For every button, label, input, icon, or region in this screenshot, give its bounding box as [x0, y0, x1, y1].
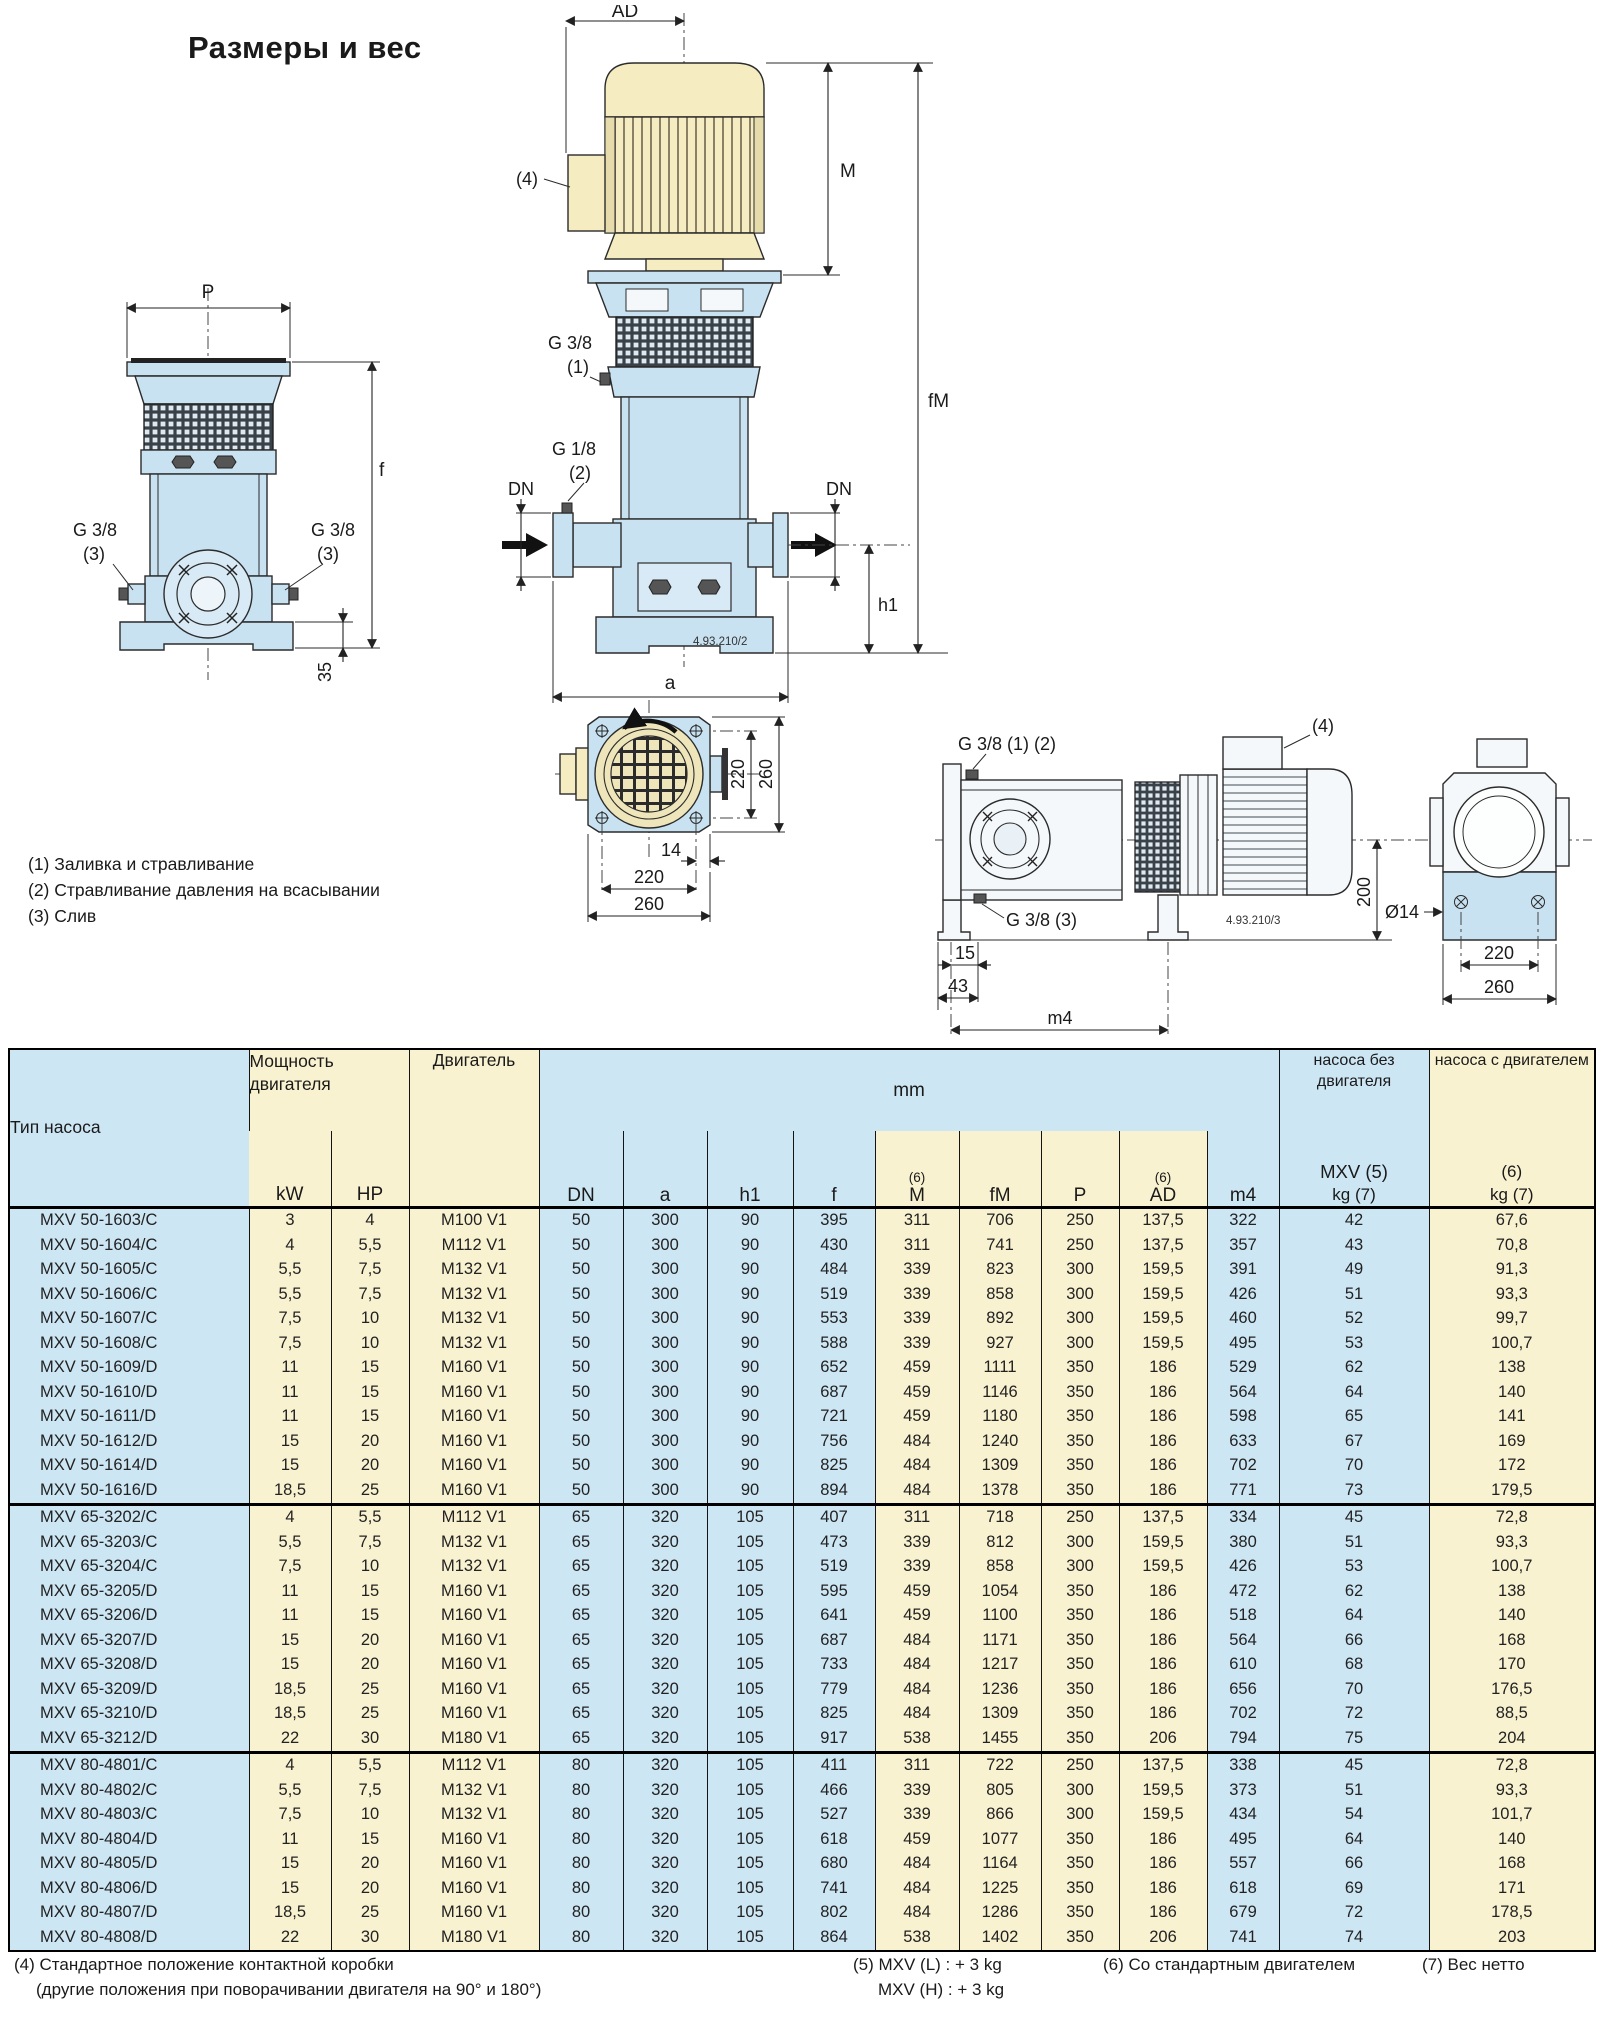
- value-cell: 75: [1279, 1726, 1429, 1752]
- drawing-horizontal-view: G 3/8 (1) (2) G 3/8 (3) (4) 4.93.210/3 2…: [930, 680, 1600, 1050]
- dim-label-ad: AD: [612, 5, 638, 22]
- value-cell: 350: [1041, 1604, 1119, 1629]
- col-header-m4: m4: [1207, 1131, 1279, 1207]
- value-cell: 250: [1041, 1207, 1119, 1233]
- footnote-4-line1: (4) Стандартное положение контактной кор…: [14, 1952, 541, 1977]
- value-cell: 430: [793, 1233, 875, 1258]
- value-cell: 171: [1429, 1876, 1595, 1901]
- value-cell: 70: [1279, 1677, 1429, 1702]
- value-cell: 66: [1279, 1628, 1429, 1653]
- value-cell: 90: [707, 1282, 793, 1307]
- dim-label-260-bottom: 260: [634, 894, 664, 914]
- footnote-5-line2: MXV (H) : + 3 kg: [853, 1977, 1004, 2002]
- value-cell: 434: [1207, 1803, 1279, 1828]
- value-cell: 858: [959, 1555, 1041, 1580]
- value-cell: 62: [1279, 1579, 1429, 1604]
- value-cell: 105: [707, 1555, 793, 1580]
- value-cell: 679: [1207, 1901, 1279, 1926]
- value-cell: 90: [707, 1233, 793, 1258]
- value-cell: 300: [623, 1282, 707, 1307]
- col-header-motor: Двигатель: [409, 1049, 539, 1207]
- port-label-n3-right: (3): [317, 544, 339, 564]
- value-cell: M160 V1: [409, 1478, 539, 1504]
- note-1: (1) Заливка и стравливание: [28, 851, 380, 877]
- motor-fins: [605, 117, 764, 233]
- value-cell: 320: [623, 1778, 707, 1803]
- value-cell: M160 V1: [409, 1429, 539, 1454]
- dim-label-260-right: 260: [756, 759, 776, 789]
- value-cell: M160 V1: [409, 1628, 539, 1653]
- pump-type-cell: MXV 80-4804/D: [9, 1827, 249, 1852]
- value-cell: 825: [793, 1702, 875, 1727]
- value-cell: 186: [1119, 1405, 1207, 1430]
- value-cell: 11: [249, 1604, 331, 1629]
- value-cell: 141: [1429, 1405, 1595, 1430]
- table-row: MXV 50-1607/C7,510M132 V1503009055333989…: [9, 1307, 1595, 1332]
- value-cell: 484: [875, 1677, 959, 1702]
- value-cell: 50: [539, 1405, 623, 1430]
- value-cell: 311: [875, 1752, 959, 1778]
- value-cell: 65: [539, 1726, 623, 1752]
- table-row: MXV 65-3212/D2230M180 V16532010591753814…: [9, 1726, 1595, 1752]
- value-cell: 105: [707, 1677, 793, 1702]
- col-header-pump-type: Тип насоса: [9, 1049, 249, 1207]
- port-label-n1: (1): [567, 357, 589, 377]
- value-cell: 1164: [959, 1852, 1041, 1877]
- pump-type-cell: MXV 50-1606/C: [9, 1282, 249, 1307]
- col-header-kw: kW: [249, 1131, 331, 1207]
- value-cell: 300: [1041, 1555, 1119, 1580]
- value-cell: 11: [249, 1405, 331, 1430]
- value-cell: 15: [249, 1876, 331, 1901]
- table-row: MXV 80-4806/D1520M160 V18032010574148412…: [9, 1876, 1595, 1901]
- table-row: MXV 65-3207/D1520M160 V16532010568748411…: [9, 1628, 1595, 1653]
- table-row: MXV 80-4805/D1520M160 V18032010568048411…: [9, 1852, 1595, 1877]
- table-row: MXV 65-3206/D1115M160 V16532010564145911…: [9, 1604, 1595, 1629]
- value-cell: M112 V1: [409, 1233, 539, 1258]
- value-cell: 18,5: [249, 1901, 331, 1926]
- value-cell: 350: [1041, 1405, 1119, 1430]
- pump-type-cell: MXV 65-3208/D: [9, 1653, 249, 1678]
- table-row: MXV 80-4804/D1115M160 V18032010561845910…: [9, 1827, 1595, 1852]
- value-cell: 618: [793, 1827, 875, 1852]
- value-cell: M132 V1: [409, 1778, 539, 1803]
- port-label-g18: G 1/8: [552, 439, 596, 459]
- value-cell: 20: [331, 1876, 409, 1901]
- value-cell: 320: [623, 1579, 707, 1604]
- value-cell: 53: [1279, 1555, 1429, 1580]
- value-cell: 52: [1279, 1307, 1429, 1332]
- dim-label-m4: m4: [1047, 1008, 1072, 1028]
- value-cell: 300: [1041, 1258, 1119, 1283]
- value-cell: M160 V1: [409, 1677, 539, 1702]
- value-cell: 5,5: [249, 1258, 331, 1283]
- value-cell: 18,5: [249, 1702, 331, 1727]
- value-cell: 18,5: [249, 1478, 331, 1504]
- col-header-mm: mm: [539, 1049, 1279, 1131]
- value-cell: 557: [1207, 1852, 1279, 1877]
- pump-type-cell: MXV 80-4808/D: [9, 1925, 249, 1951]
- value-cell: 484: [793, 1258, 875, 1283]
- value-cell: M112 V1: [409, 1504, 539, 1530]
- value-cell: M160 V1: [409, 1579, 539, 1604]
- value-cell: 350: [1041, 1702, 1119, 1727]
- value-cell: 473: [793, 1530, 875, 1555]
- pump-type-cell: MXV 50-1611/D: [9, 1405, 249, 1430]
- value-cell: 4: [249, 1504, 331, 1530]
- value-cell: 320: [623, 1901, 707, 1926]
- motor-dome: [1307, 769, 1352, 895]
- pump-type-cell: MXV 80-4801/C: [9, 1752, 249, 1778]
- table-row: MXV 65-3210/D18,525M160 V165320105825484…: [9, 1702, 1595, 1727]
- value-cell: 137,5: [1119, 1504, 1207, 1530]
- value-cell: 43: [1279, 1233, 1429, 1258]
- value-cell: 733: [793, 1653, 875, 1678]
- value-cell: 72: [1279, 1901, 1429, 1926]
- value-cell: 204: [1429, 1726, 1595, 1752]
- value-cell: 7,5: [331, 1530, 409, 1555]
- value-cell: 1111: [959, 1356, 1041, 1381]
- value-cell: 411: [793, 1752, 875, 1778]
- pump-type-cell: MXV 65-3203/C: [9, 1530, 249, 1555]
- value-cell: 186: [1119, 1579, 1207, 1604]
- col-header-m: (6) M: [875, 1131, 959, 1207]
- footnote-ref-6: (6): [876, 1170, 959, 1185]
- value-cell: 105: [707, 1803, 793, 1828]
- value-cell: 50: [539, 1454, 623, 1479]
- value-cell: 320: [623, 1803, 707, 1828]
- table-row: MXV 65-3208/D1520M160 V16532010573348412…: [9, 1653, 1595, 1678]
- value-cell: 72,8: [1429, 1752, 1595, 1778]
- value-cell: 350: [1041, 1852, 1119, 1877]
- value-cell: 495: [1207, 1331, 1279, 1356]
- value-cell: 186: [1119, 1454, 1207, 1479]
- value-cell: 7,5: [249, 1803, 331, 1828]
- pump-type-cell: MXV 80-4807/D: [9, 1901, 249, 1926]
- value-cell: 338: [1207, 1752, 1279, 1778]
- value-cell: 300: [1041, 1307, 1119, 1332]
- value-cell: 15: [249, 1454, 331, 1479]
- port-label-n3-left: (3): [83, 544, 105, 564]
- value-cell: M132 V1: [409, 1331, 539, 1356]
- value-cell: 65: [539, 1530, 623, 1555]
- value-cell: 15: [331, 1604, 409, 1629]
- footnote-6: (6) Со стандартным двигателем: [1103, 1952, 1355, 1977]
- value-cell: 484: [875, 1876, 959, 1901]
- value-cell: 320: [623, 1852, 707, 1877]
- value-cell: 50: [539, 1258, 623, 1283]
- footnote-4-line2: (другие положения при поворачивании двиг…: [14, 1977, 541, 2002]
- value-cell: 7,5: [249, 1555, 331, 1580]
- value-cell: 300: [1041, 1803, 1119, 1828]
- footnote-5: (5) MXV (L) : + 3 kg MXV (H) : + 3 kg: [853, 1952, 1004, 2002]
- value-cell: 538: [875, 1925, 959, 1951]
- table-row: MXV 50-1614/D1520M160 V15030090825484130…: [9, 1454, 1595, 1479]
- value-cell: 300: [1041, 1530, 1119, 1555]
- value-cell: 54: [1279, 1803, 1429, 1828]
- value-cell: 459: [875, 1405, 959, 1430]
- value-cell: 105: [707, 1876, 793, 1901]
- value-cell: 519: [793, 1282, 875, 1307]
- value-cell: 250: [1041, 1233, 1119, 1258]
- footnote-4: (4) Стандартное положение контактной кор…: [14, 1952, 541, 2002]
- pump-type-cell: MXV 65-3202/C: [9, 1504, 249, 1530]
- value-cell: 320: [623, 1604, 707, 1629]
- value-cell: 407: [793, 1504, 875, 1530]
- value-cell: 22: [249, 1925, 331, 1951]
- value-cell: M160 V1: [409, 1901, 539, 1926]
- value-cell: 186: [1119, 1827, 1207, 1852]
- value-cell: 706: [959, 1207, 1041, 1233]
- value-cell: 1146: [959, 1380, 1041, 1405]
- value-cell: 20: [331, 1653, 409, 1678]
- value-cell: 20: [331, 1429, 409, 1454]
- value-cell: 90: [707, 1331, 793, 1356]
- dim-label-220-end: 220: [1484, 943, 1514, 963]
- value-cell: 30: [331, 1726, 409, 1752]
- value-cell: M160 V1: [409, 1702, 539, 1727]
- value-cell: 300: [1041, 1778, 1119, 1803]
- value-cell: 137,5: [1119, 1752, 1207, 1778]
- value-cell: 186: [1119, 1478, 1207, 1504]
- value-cell: 18,5: [249, 1677, 331, 1702]
- value-cell: 66: [1279, 1852, 1429, 1877]
- value-cell: 49: [1279, 1258, 1429, 1283]
- coupling-guard-mesh: [144, 404, 273, 450]
- value-cell: 68: [1279, 1653, 1429, 1678]
- value-cell: 186: [1119, 1604, 1207, 1629]
- value-cell: 1180: [959, 1405, 1041, 1430]
- col-header-weight-with-motor: насоса с двигателем: [1429, 1049, 1595, 1131]
- value-cell: 67: [1279, 1429, 1429, 1454]
- port-notes: (1) Заливка и стравливание (2) Стравлива…: [28, 851, 380, 929]
- value-cell: 206: [1119, 1726, 1207, 1752]
- table-row: MXV 65-3203/C5,57,5M132 V165320105473339…: [9, 1530, 1595, 1555]
- value-cell: 618: [1207, 1876, 1279, 1901]
- value-cell: 7,5: [249, 1307, 331, 1332]
- value-cell: M160 V1: [409, 1454, 539, 1479]
- value-cell: 1100: [959, 1604, 1041, 1629]
- table-row: MXV 50-1616/D18,525M160 V150300908944841…: [9, 1478, 1595, 1504]
- value-cell: 350: [1041, 1579, 1119, 1604]
- value-cell: 20: [331, 1852, 409, 1877]
- value-cell: 105: [707, 1778, 793, 1803]
- value-cell: 334: [1207, 1504, 1279, 1530]
- value-cell: 864: [793, 1925, 875, 1951]
- value-cell: 99,7: [1429, 1307, 1595, 1332]
- value-cell: 90: [707, 1405, 793, 1430]
- weight-with-motor-line1: (6): [1430, 1160, 1595, 1183]
- table-row: MXV 80-4808/D2230M180 V18032010586453814…: [9, 1925, 1595, 1951]
- value-cell: M132 V1: [409, 1530, 539, 1555]
- terminal-box: [568, 155, 605, 231]
- value-cell: M160 V1: [409, 1827, 539, 1852]
- value-cell: 350: [1041, 1827, 1119, 1852]
- value-cell: 339: [875, 1307, 959, 1332]
- value-cell: 1225: [959, 1876, 1041, 1901]
- value-cell: 300: [623, 1454, 707, 1479]
- table-row: MXV 50-1611/D1115M160 V15030090721459118…: [9, 1405, 1595, 1430]
- value-cell: 802: [793, 1901, 875, 1926]
- col-header-fm: fM: [959, 1131, 1041, 1207]
- value-cell: 652: [793, 1356, 875, 1381]
- dim-label-43: 43: [948, 976, 968, 996]
- value-cell: 794: [1207, 1726, 1279, 1752]
- dim-label-15: 15: [955, 943, 975, 963]
- value-cell: 105: [707, 1653, 793, 1678]
- value-cell: 159,5: [1119, 1258, 1207, 1283]
- port-label-g38-left: G 3/8: [73, 520, 117, 540]
- value-cell: M132 V1: [409, 1803, 539, 1828]
- value-cell: 140: [1429, 1380, 1595, 1405]
- value-cell: 320: [623, 1752, 707, 1778]
- value-cell: 72: [1279, 1702, 1429, 1727]
- value-cell: 779: [793, 1677, 875, 1702]
- weight-pump-line1: MXV (5): [1280, 1160, 1429, 1183]
- weight-with-motor-line2: kg (7): [1430, 1183, 1595, 1206]
- value-cell: 5,5: [249, 1530, 331, 1555]
- value-cell: 300: [623, 1258, 707, 1283]
- value-cell: 322: [1207, 1207, 1279, 1233]
- value-cell: 15: [249, 1628, 331, 1653]
- value-cell: 1236: [959, 1677, 1041, 1702]
- value-cell: 186: [1119, 1677, 1207, 1702]
- value-cell: 1402: [959, 1925, 1041, 1951]
- value-cell: 65: [539, 1677, 623, 1702]
- value-cell: 11: [249, 1579, 331, 1604]
- value-cell: 159,5: [1119, 1530, 1207, 1555]
- value-cell: 105: [707, 1604, 793, 1629]
- value-cell: M100 V1: [409, 1207, 539, 1233]
- value-cell: 350: [1041, 1628, 1119, 1653]
- value-cell: 105: [707, 1925, 793, 1951]
- value-cell: 320: [623, 1876, 707, 1901]
- value-cell: 687: [793, 1628, 875, 1653]
- value-cell: 538: [875, 1726, 959, 1752]
- value-cell: 15: [249, 1653, 331, 1678]
- motor-power-label: Мощность двигателя: [250, 1050, 370, 1096]
- value-cell: M132 V1: [409, 1282, 539, 1307]
- table-group-mxv80: MXV 80-4801/C45,5M112 V18032010541131172…: [9, 1752, 1595, 1951]
- page-title: Размеры и вес: [188, 30, 422, 66]
- value-cell: 459: [875, 1380, 959, 1405]
- dim-label-fm: fM: [928, 391, 949, 412]
- col-header-p: P: [1041, 1131, 1119, 1207]
- value-cell: 90: [707, 1429, 793, 1454]
- value-cell: 90: [707, 1207, 793, 1233]
- value-cell: 250: [1041, 1504, 1119, 1530]
- value-cell: 105: [707, 1827, 793, 1852]
- table-row: MXV 50-1610/D1115M160 V15030090687459114…: [9, 1380, 1595, 1405]
- value-cell: 93,3: [1429, 1778, 1595, 1803]
- value-cell: 10: [331, 1331, 409, 1356]
- value-cell: 1171: [959, 1628, 1041, 1653]
- col-header-a: a: [623, 1131, 707, 1207]
- col-header-ad: (6) AD: [1119, 1131, 1207, 1207]
- value-cell: 168: [1429, 1628, 1595, 1653]
- value-cell: 72,8: [1429, 1504, 1595, 1530]
- value-cell: 62: [1279, 1356, 1429, 1381]
- value-cell: 300: [623, 1331, 707, 1356]
- value-cell: 100,7: [1429, 1555, 1595, 1580]
- value-cell: 564: [1207, 1380, 1279, 1405]
- value-cell: 350: [1041, 1677, 1119, 1702]
- value-cell: 65: [539, 1579, 623, 1604]
- dim-label-200: 200: [1354, 877, 1374, 907]
- pump-type-cell: MXV 65-3206/D: [9, 1604, 249, 1629]
- value-cell: 140: [1429, 1604, 1595, 1629]
- value-cell: 15: [331, 1405, 409, 1430]
- value-cell: 15: [249, 1852, 331, 1877]
- value-cell: 741: [1207, 1925, 1279, 1951]
- weight-pump-line2: kg (7): [1280, 1183, 1429, 1206]
- note-2: (2) Стравливание давления на всасывании: [28, 877, 380, 903]
- dim-label-14: 14: [661, 840, 681, 860]
- value-cell: 756: [793, 1429, 875, 1454]
- pump-type-cell: MXV 50-1603/C: [9, 1207, 249, 1233]
- value-cell: 50: [539, 1331, 623, 1356]
- table-row: MXV 50-1603/C34M100 V1503009039531170625…: [9, 1207, 1595, 1233]
- value-cell: M132 V1: [409, 1555, 539, 1580]
- value-cell: 339: [875, 1530, 959, 1555]
- value-cell: 300: [623, 1207, 707, 1233]
- pump-type-cell: MXV 65-3207/D: [9, 1628, 249, 1653]
- table-group-mxv65: MXV 65-3202/C45,5M112 V16532010540731171…: [9, 1504, 1595, 1752]
- value-cell: 518: [1207, 1604, 1279, 1629]
- value-cell: 395: [793, 1207, 875, 1233]
- pump-type-cell: MXV 80-4803/C: [9, 1803, 249, 1828]
- value-cell: 80: [539, 1901, 623, 1926]
- value-cell: 10: [331, 1307, 409, 1332]
- pump-type-cell: MXV 65-3209/D: [9, 1677, 249, 1702]
- value-cell: 484: [875, 1454, 959, 1479]
- value-cell: 350: [1041, 1653, 1119, 1678]
- value-cell: 484: [875, 1478, 959, 1504]
- fan-grate: [611, 736, 687, 812]
- value-cell: 206: [1119, 1925, 1207, 1951]
- value-cell: 339: [875, 1282, 959, 1307]
- value-cell: 50: [539, 1380, 623, 1405]
- port-label-g38-3: G 3/8 (3): [1006, 910, 1077, 930]
- table-row: MXV 65-3209/D18,525M160 V165320105779484…: [9, 1677, 1595, 1702]
- table-row: MXV 80-4807/D18,525M160 V180320105802484…: [9, 1901, 1595, 1926]
- value-cell: M132 V1: [409, 1258, 539, 1283]
- value-cell: 373: [1207, 1778, 1279, 1803]
- value-cell: 805: [959, 1778, 1041, 1803]
- value-cell: 825: [793, 1454, 875, 1479]
- value-cell: 459: [875, 1827, 959, 1852]
- value-cell: 138: [1429, 1356, 1595, 1381]
- value-cell: 484: [875, 1628, 959, 1653]
- value-cell: 179,5: [1429, 1478, 1595, 1504]
- value-cell: 140: [1429, 1827, 1595, 1852]
- value-cell: M160 V1: [409, 1356, 539, 1381]
- value-cell: 771: [1207, 1478, 1279, 1504]
- value-cell: M160 V1: [409, 1653, 539, 1678]
- terminal-box: [1223, 737, 1282, 769]
- footnote-5-line1: (5) MXV (L) : + 3 kg: [853, 1952, 1004, 1977]
- value-cell: 595: [793, 1579, 875, 1604]
- value-cell: 20: [331, 1454, 409, 1479]
- value-cell: 641: [793, 1604, 875, 1629]
- value-cell: 90: [707, 1478, 793, 1504]
- value-cell: 74: [1279, 1925, 1429, 1951]
- value-cell: 80: [539, 1852, 623, 1877]
- value-cell: M180 V1: [409, 1925, 539, 1951]
- value-cell: 186: [1119, 1901, 1207, 1926]
- col-header-weight-pump: насоса без двигателя: [1279, 1049, 1429, 1131]
- value-cell: 250: [1041, 1752, 1119, 1778]
